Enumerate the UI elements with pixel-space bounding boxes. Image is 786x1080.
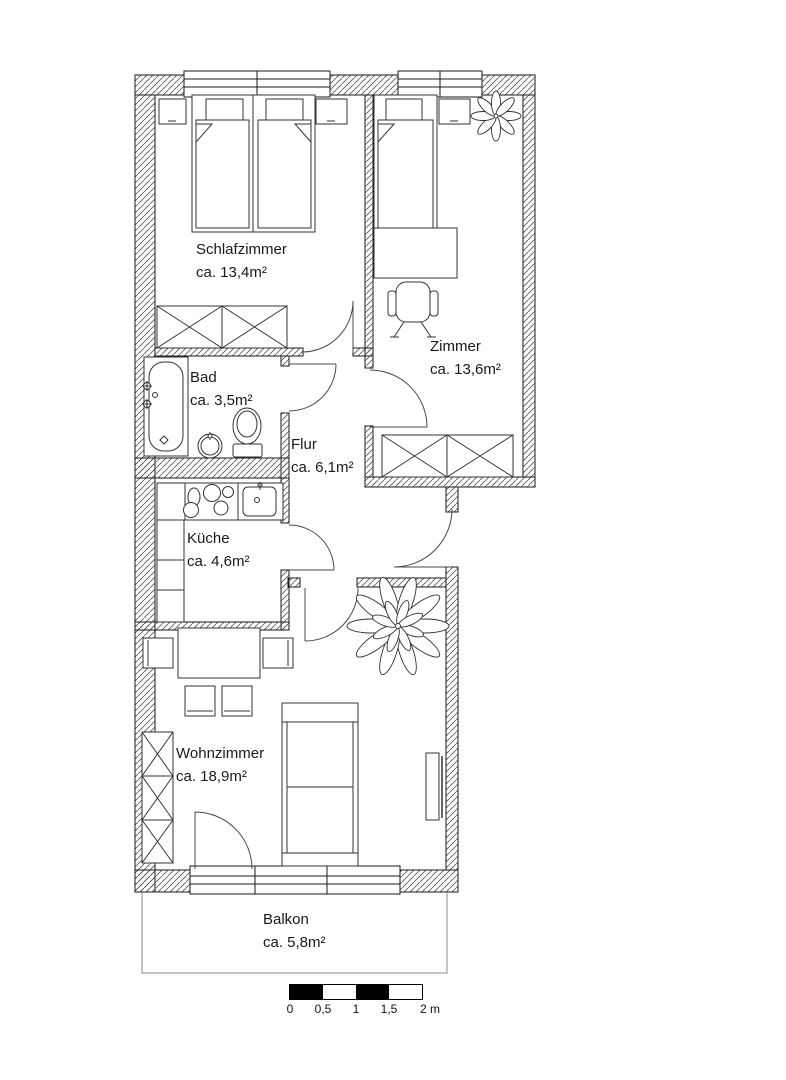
scale-bar-segment [323,985,356,999]
window-icon [398,71,482,97]
wall-room-divider-lower [365,426,373,477]
room-label-wohnzimmer: Wohnzimmer ca. 18,9m² [176,742,264,788]
room-name: Zimmer [430,335,501,358]
desk-icon [374,228,457,278]
wall-wohnzimmer-top-right [357,578,446,587]
dining-chair-icon [143,638,173,668]
room-name: Schlafzimmer [196,238,287,261]
room-area: ca. 18,9m² [176,765,264,788]
door-swing-icon [305,588,358,641]
scale-bar-segment [389,985,422,999]
room-name: Bad [190,366,253,389]
room-label-schlafzimmer: Schlafzimmer ca. 13,4m² [196,238,287,284]
room-label-bad: Bad ca. 3,5m² [190,366,253,412]
room-area: ca. 13,4m² [196,261,287,284]
single-bed-icon [374,95,437,232]
door-swing-icon [195,812,252,869]
room-area: ca. 5,8m² [263,931,326,954]
room-name: Flur [291,433,354,456]
office-chair-icon [388,282,438,337]
room-label-flur: Flur ca. 6,1m² [291,433,354,479]
exterior-wall-right-upper [523,95,535,477]
dining-chair-icon [222,686,252,716]
wall-schlafzimmer-bottom-left [155,348,303,356]
scale-tick-label: 2 m [420,1002,440,1016]
nightstand-icon [316,99,347,124]
dining-table-icon [178,628,260,678]
scale-tick-label: 0 [287,1002,294,1016]
double-bed-icon [192,95,315,232]
wall-room-divider-upper [365,95,373,368]
floor-plan-drawing [0,0,786,1080]
wall-entrance-jamb-top [446,487,458,512]
sofa-icon [282,703,358,866]
door-swing-icon [289,525,334,570]
room-name: Küche [187,527,250,550]
nightstand-icon [159,99,186,124]
floor-plan-canvas: Schlafzimmer ca. 13,4m² Zimmer ca. 13,6m… [0,0,786,1080]
room-label-zimmer: Zimmer ca. 13,6m² [430,335,501,381]
scale-tick-label: 1 [353,1002,360,1016]
door-swing-icon [394,509,452,567]
plant-icon [347,575,449,676]
dining-chair-icon [263,638,293,668]
door-swing-icon [289,364,336,411]
scale-bar-segment [290,985,323,999]
bathtub-icon [142,357,188,456]
wall-bad-bottom [135,458,289,478]
scale-bar [289,984,423,1000]
scale-tick-label: 0,5 [315,1002,332,1016]
kitchen-sink-icon [243,482,276,516]
door-swing-icon [303,301,353,352]
toilet-icon [233,408,262,457]
plant-icon [471,91,521,141]
room-label-kueche: Küche ca. 4,6m² [187,527,250,573]
room-area: ca. 4,6m² [187,550,250,573]
exterior-wall-right-lower [446,567,458,870]
room-area: ca. 3,5m² [190,389,253,412]
scale-tick-label: 1,5 [381,1002,398,1016]
room-name: Wohnzimmer [176,742,264,765]
wall-zimmer-bottom [365,477,535,487]
wall-wohnzimmer-top-stub [288,578,300,587]
wardrobe-icon [157,306,287,348]
wardrobe-icon [382,435,513,477]
door-swing-icon [370,370,427,427]
room-area: ca. 6,1m² [291,456,354,479]
tv-board-icon [426,753,442,820]
wall-bad-right-stub [281,356,289,366]
dining-chair-icon [185,686,215,716]
room-name: Balkon [263,908,326,931]
room-area: ca. 13,6m² [430,358,501,381]
balcony-window-icon [190,866,400,894]
scale-bar-segment [356,985,389,999]
window-icon [184,71,330,97]
room-label-balkon: Balkon ca. 5,8m² [263,908,326,954]
washbasin-icon [198,432,222,458]
nightstand-icon [439,99,470,124]
shelf-icon [142,732,173,863]
